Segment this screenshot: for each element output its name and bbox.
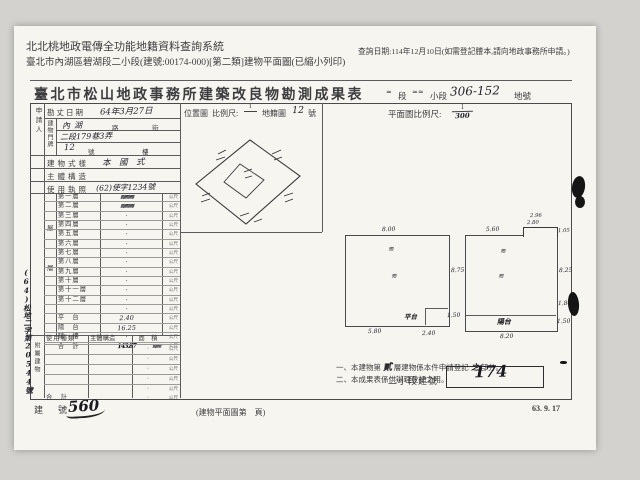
- floor-plan-right: [465, 235, 558, 332]
- floor-row-value: ·: [101, 259, 152, 267]
- dim-right-low-right: 1.50: [557, 318, 571, 325]
- plan-line: [466, 315, 556, 316]
- floor-row: 第十一層 · 公尺: [44, 286, 180, 295]
- annex-header-row: 使用種類 主體構造 面 積: [44, 335, 180, 345]
- plan-scale-label: 平面圖比例尺:: [388, 108, 441, 120]
- grid-line: [180, 103, 181, 398]
- floor-area-table: 第一層 ≋≋≋ 公尺 第二層 ≋≋≋ 公尺 第三層 · 公尺: [44, 193, 180, 335]
- dim-right-right: 8.25: [559, 267, 573, 274]
- floor-row-unit: 公尺: [162, 204, 180, 209]
- floor-row-value: ·: [101, 231, 152, 239]
- floor-row: 平 台 2.40 公尺: [44, 314, 180, 323]
- section-label: 段: [398, 90, 407, 102]
- floor-row: 第十二層 · 公尺: [44, 296, 180, 305]
- building-style-handwritten: 本 國 式: [102, 155, 145, 168]
- floor-row-unit: 公尺: [162, 214, 180, 219]
- annex-cell-value: ·: [134, 346, 162, 352]
- floor-row-label: 第三層: [56, 213, 101, 219]
- building-number-label: 建 號: [34, 403, 70, 416]
- note1-pre: 一、本建物第: [336, 363, 381, 372]
- annex-cell-unit: 公尺: [162, 367, 180, 372]
- use-license-handwritten: (62)使字1234號: [96, 181, 156, 194]
- floor-row-label: 第一層: [56, 194, 101, 200]
- door-group-label: 建物門牌: [45, 120, 54, 148]
- dim-right-notch-top: 2.80: [527, 220, 539, 226]
- floor-row-unit: 公尺: [162, 232, 180, 237]
- survey-date-label: 勘丈日期: [47, 107, 85, 118]
- floor-row-label: 第二層: [56, 203, 101, 209]
- scan-artifact-mark: [560, 361, 567, 364]
- floor-row: 第六層 · 公尺: [44, 240, 180, 249]
- annex-cell-value: ·: [134, 356, 162, 362]
- floor-row-unit: 公尺: [162, 279, 180, 284]
- floor-row-label: 第九層: [56, 269, 101, 275]
- query-date-note: 查詢日期:114年12月10日(如需登記謄本,請向地政事務所申請。): [358, 46, 570, 57]
- floor-row-label: 第十一層: [56, 287, 101, 293]
- floor-row: 第四層 · 公尺: [44, 221, 180, 230]
- floor-row-unit: 公尺: [162, 270, 180, 275]
- scale-denominator-blank: [244, 111, 257, 119]
- dim-left-notch: 1.50: [447, 312, 461, 319]
- annex-total-unit: 公尺: [162, 396, 180, 401]
- floor-row-unit: 公尺: [162, 251, 180, 256]
- floor-row-value: ·: [101, 240, 152, 248]
- floor-row-value: ·: [101, 249, 152, 257]
- subsection-building-label: 二小段建號: [388, 374, 438, 387]
- floor-row: 第三層 · 公尺: [44, 212, 180, 221]
- plan-line: [425, 308, 448, 309]
- annex-row: · 公尺: [44, 345, 180, 355]
- cadastral-map-number-handwritten: 12: [292, 105, 304, 116]
- terrace-stamp: 平台: [404, 311, 417, 321]
- floor-row-unit: 公尺: [162, 242, 180, 247]
- number-label: 號: [88, 146, 95, 156]
- dim-right-bottom: 8.20: [500, 333, 514, 340]
- floor-row-unit: 公尺: [162, 195, 180, 200]
- handwriting-scribble: ≋: [388, 245, 394, 253]
- lot-label: 地號: [514, 90, 531, 102]
- subsection-label: 小段: [430, 90, 447, 102]
- annex-cell-value: ·: [134, 366, 162, 372]
- handwriting-scribble: ≋: [391, 272, 397, 280]
- page-note: (建物平面圖第 頁): [196, 407, 265, 418]
- grid-line: [180, 232, 322, 233]
- location-scale-fraction: 1: [244, 104, 257, 118]
- grid-line: [56, 118, 57, 155]
- floor-row-unit: 公尺: [162, 260, 180, 265]
- floor-row-value: ≋≋≋: [101, 193, 152, 201]
- location-map-label: 位置圖: [184, 108, 208, 119]
- annex-header-use: 使用種類: [44, 336, 90, 342]
- floor-row-unit: 公尺: [162, 288, 180, 293]
- floor-row-unit: 公尺: [162, 326, 180, 331]
- handwriting-scribble: ≋: [498, 272, 504, 280]
- floor-row-unit: 公尺: [162, 223, 180, 228]
- building-style-label: 建物式樣: [47, 158, 89, 169]
- annex-total-row: 合 計 · 公尺: [44, 394, 180, 403]
- floor-row-value: 2.40: [101, 315, 152, 323]
- floor-row: 陽 台 16.25 公尺: [44, 324, 180, 333]
- floor-plan-left: [345, 235, 450, 327]
- floor-row-label: 陽 台: [56, 325, 101, 331]
- cadastral-map-label: 地籍圖: [262, 108, 286, 119]
- plan-scale-denominator-handwritten: 300: [452, 111, 473, 120]
- floor-row: 第五層 · 公尺: [44, 230, 180, 239]
- plan-notch: [523, 227, 558, 237]
- floor-row-label: 平 台: [56, 315, 101, 321]
- lot-number-handwritten: 306-152: [450, 83, 500, 98]
- floor-row-value: ·: [101, 277, 152, 285]
- annex-row: · 公尺: [44, 365, 180, 375]
- floor-row-value: ≋≋≋: [101, 203, 152, 211]
- document-line: 臺北市內湖區碧湖段二小段(建號:00174-000)[第二類]建物平面圖(已縮小…: [26, 54, 345, 68]
- sheet-number-label: 號: [308, 108, 316, 119]
- screenshot-canvas: 北北桃地政電傳全功能地籍資料查詢系統 臺北市內湖區碧湖段二小段(建號:00174…: [0, 0, 640, 480]
- floor-row-label: 第四層: [56, 222, 101, 228]
- floor-row-value: ·: [101, 268, 152, 276]
- floor-row-unit: 公尺: [162, 316, 180, 321]
- grid-line: [322, 103, 323, 232]
- dim-left-bottom-left: 5.80: [368, 328, 382, 335]
- dim-right-notch-right: 1.05: [558, 228, 570, 234]
- door-number-handwritten: 12: [64, 143, 75, 153]
- annex-row: · 公尺: [44, 375, 180, 385]
- floor-row: 第一層 ≋≋≋ 公尺: [44, 193, 180, 202]
- floor-row-value: ·: [101, 221, 152, 229]
- annex-cell-value: ·: [134, 376, 162, 382]
- annex-cell-unit: 公尺: [162, 377, 180, 382]
- annex-rows: · 公尺 · 公尺 · 公尺: [44, 345, 180, 394]
- handwriting-scribble: ≋: [500, 247, 506, 255]
- road-label: 路: [112, 122, 119, 132]
- floor-row-label: 第十二層: [56, 297, 101, 303]
- floor-row-value: ·: [101, 287, 152, 295]
- note1-handwritten-floor: 貳: [383, 360, 392, 373]
- floor-row-unit: 公尺: [162, 307, 180, 312]
- lane-alley-handwritten: 二段179巷3弄: [60, 130, 113, 142]
- street-name-handwritten: 內湖: [62, 120, 86, 132]
- annex-cell-value: ·: [134, 386, 162, 392]
- floor-row-label: 第八層: [56, 259, 101, 265]
- annex-row: · 公尺: [44, 385, 180, 394]
- applicant-label: 申請人: [32, 107, 42, 136]
- plan-scale-numerator: 1: [461, 104, 465, 111]
- dim-right-top-left: 5.60: [486, 226, 500, 233]
- dim-right-notch-top2: 2.96: [530, 213, 542, 219]
- location-sketch: [188, 132, 308, 232]
- form-title: 臺北市松山地政事務所建築改良物勘測成果表: [34, 84, 364, 104]
- top-rule: [30, 80, 572, 81]
- street-label: 街: [152, 122, 159, 132]
- annex-table: 使用種類 主體構造 面 積 · 公尺 · 公尺: [44, 335, 180, 398]
- floor-row-value: ·: [101, 305, 152, 313]
- form-version-date: 63. 9. 17: [532, 404, 560, 413]
- annex-row: · 公尺: [44, 355, 180, 365]
- grid-line: [44, 118, 180, 119]
- survey-date-handwritten: 64年3月27日: [100, 104, 153, 117]
- annex-header-area: 面 積: [134, 336, 162, 342]
- dim-left-top: 8.00: [382, 226, 396, 233]
- floor-row-value: 16.25: [101, 324, 152, 332]
- floor-row-label: 第七層: [56, 250, 101, 256]
- structure-label: 主體構造: [47, 171, 89, 182]
- app-title: 北北桃地政電傳全功能地籍資料查詢系統: [26, 38, 224, 54]
- balcony-stamp: 陽台: [497, 317, 511, 327]
- floor-row: 第二層 ≋≋≋ 公尺: [44, 202, 180, 211]
- scan-artifact-blob: [575, 196, 585, 208]
- annex-cell-unit: 公尺: [162, 347, 180, 352]
- floor-row: 第七層 · 公尺: [44, 249, 180, 258]
- floor-row-label: 第六層: [56, 241, 101, 247]
- floor-row-label: 第五層: [56, 231, 101, 237]
- floor-row: 第八層 · 公尺: [44, 258, 180, 267]
- floor-row-label: 第十層: [56, 278, 101, 284]
- plan-line: [425, 308, 426, 325]
- location-scale-label: 比例尺:: [212, 108, 238, 119]
- annex-cell-unit: 公尺: [162, 387, 180, 392]
- dim-left-bottom-mid: 2.40: [422, 330, 436, 337]
- floor-row-value: ·: [101, 296, 152, 304]
- annex-header-structure: 主體構造: [90, 336, 134, 342]
- floor-row: 第九層 · 公尺: [44, 268, 180, 277]
- annex-total-value: ·: [134, 395, 162, 401]
- annex-cell-unit: 公尺: [162, 357, 180, 362]
- handwriting-scribble: ≈≈: [412, 88, 424, 96]
- subsection-building-number-handwritten: 174: [474, 362, 508, 382]
- plan-scale-fraction: 1 300: [452, 104, 473, 119]
- dim-left-right: 8.75: [451, 267, 465, 274]
- floor-row-value: ·: [101, 212, 152, 220]
- floor-row-unit: 公尺: [162, 298, 180, 303]
- handwriting-scribble: ≈: [386, 88, 392, 96]
